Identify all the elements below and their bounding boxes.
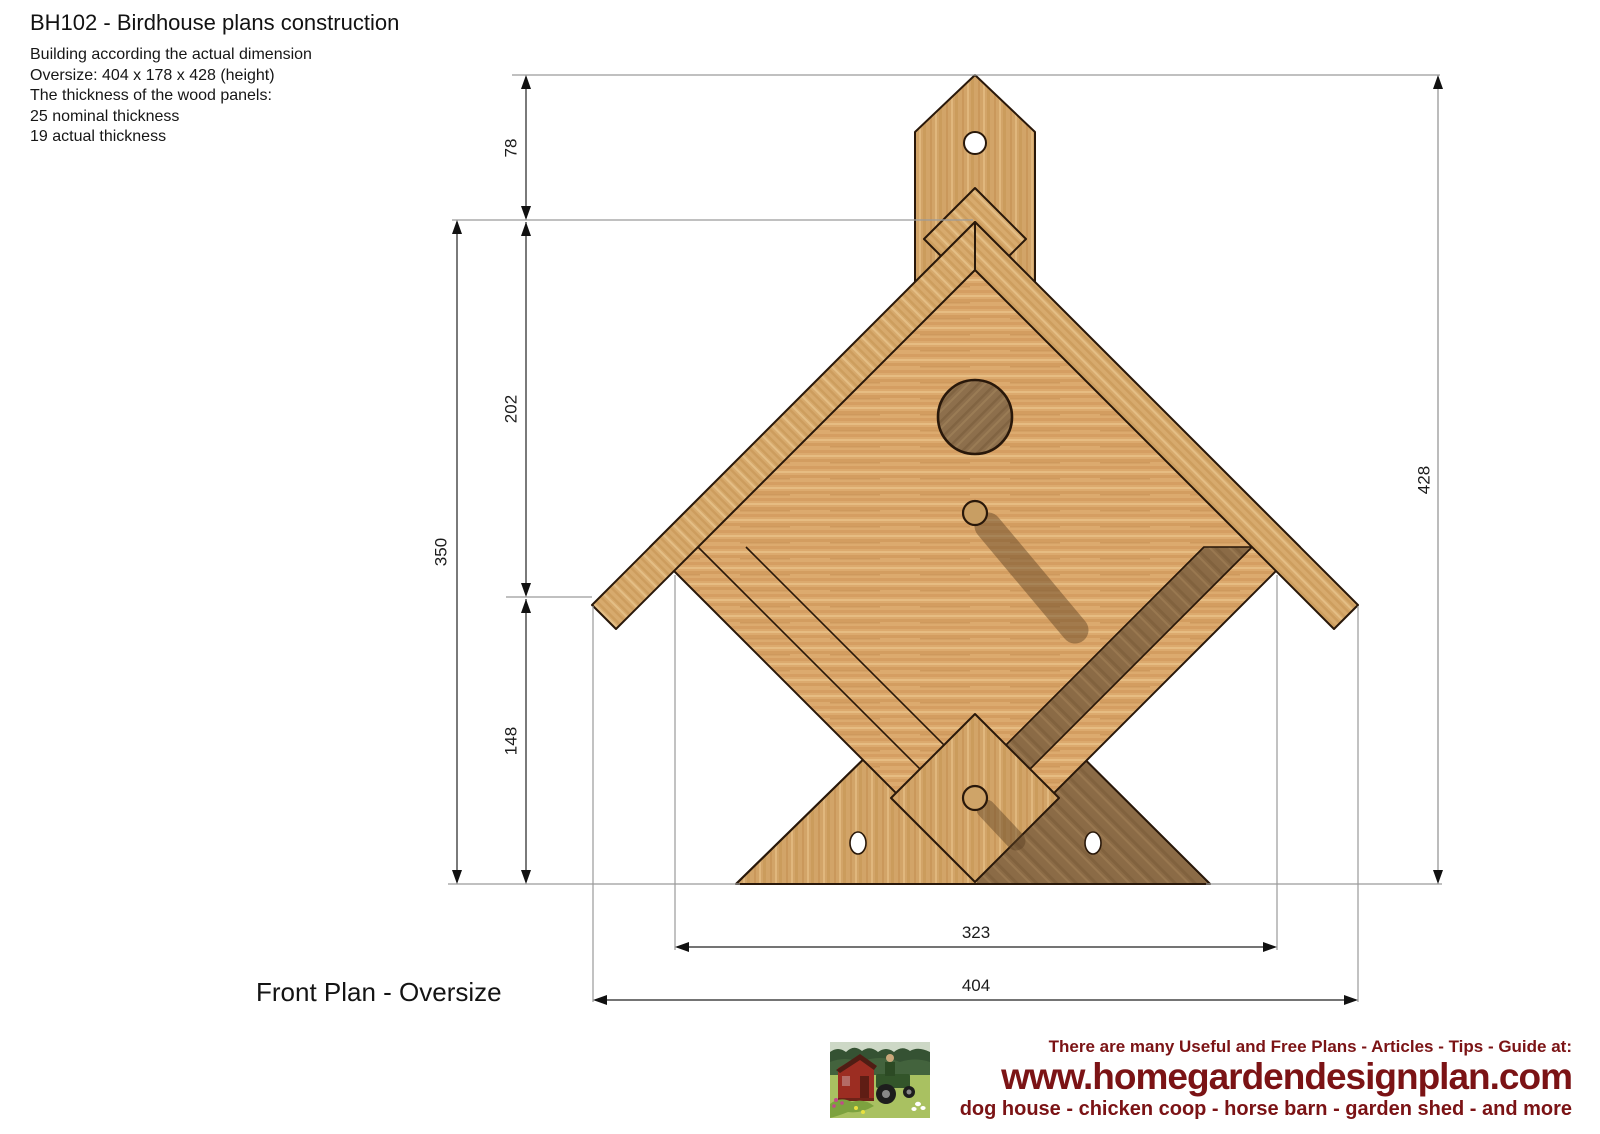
footer-tagline: There are many Useful and Free Plans - A… (960, 1036, 1572, 1057)
perch-hole (963, 501, 987, 525)
hanging-hole (964, 132, 986, 154)
base-screw-hole-left (850, 832, 866, 854)
dim-label-428: 428 (1415, 466, 1434, 494)
footer-url: www.homegardendesignplan.com (960, 1057, 1572, 1097)
dim-label-404: 404 (962, 976, 990, 995)
birdhouse-illustration (592, 75, 1358, 884)
page: BH102 - Birdhouse plans construction Bui… (0, 0, 1600, 1134)
birdhouse-front-plan-drawing: 78 202 350 148 428 323 404 (0, 0, 1600, 1134)
dim-label-148: 148 (502, 727, 521, 755)
footer-subline: dog house - chicken coop - horse barn - … (960, 1097, 1572, 1121)
dim-label-350: 350 (432, 538, 451, 566)
footer-thumbnail-image (830, 1042, 930, 1118)
base-screw-hole-right (1085, 832, 1101, 854)
entrance-hole (938, 380, 1012, 454)
drawing-caption: Front Plan - Oversize (256, 977, 502, 1008)
footer-banner: There are many Useful and Free Plans - A… (960, 1036, 1572, 1121)
dim-label-78: 78 (502, 139, 521, 158)
dim-label-202: 202 (502, 395, 521, 423)
drain-hole (963, 786, 987, 810)
dim-label-323: 323 (962, 923, 990, 942)
